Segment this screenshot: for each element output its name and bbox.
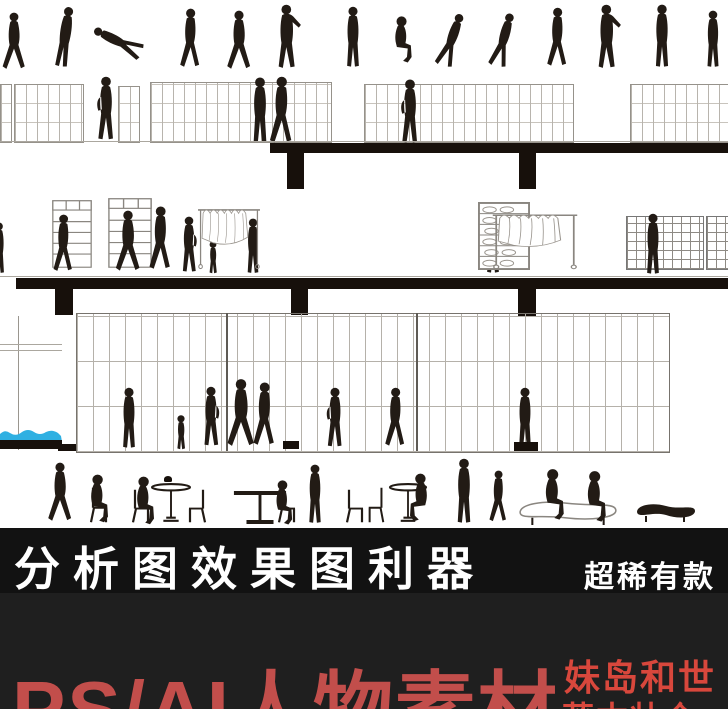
person-silhouette (46, 462, 74, 524)
floor-marker (58, 444, 76, 451)
person-silhouette-shopper (198, 384, 224, 450)
shelf-panel (0, 84, 12, 143)
person-silhouette-seated (534, 468, 568, 522)
shelf-panel (118, 86, 140, 143)
person-silhouette-seated (406, 472, 438, 524)
person-silhouette (224, 10, 254, 72)
person-silhouette (700, 10, 726, 68)
chair (276, 488, 298, 524)
column (55, 289, 73, 315)
floor-line (0, 141, 728, 142)
person-silhouette (384, 16, 416, 64)
architect-name-2: 藤本壮介 (562, 693, 698, 709)
chair (130, 488, 152, 524)
person-silhouette (266, 76, 296, 146)
footer-section: PS/AI人物素材 妹岛和世 藤本壮介 (0, 593, 728, 709)
person-silhouette (0, 222, 10, 274)
person-silhouette (450, 458, 478, 524)
title-banner: 分析图效果图利器 超稀有款 (0, 528, 728, 593)
person-silhouette-backpacker (396, 78, 424, 146)
person-silhouette (112, 210, 144, 274)
mullion (416, 313, 418, 451)
person-silhouette (250, 378, 278, 452)
person-silhouette (430, 9, 473, 72)
person-silhouette (0, 12, 28, 72)
person-silhouette (50, 214, 76, 274)
shelf-panel (14, 84, 84, 143)
person-silhouette-child (172, 414, 190, 450)
chair (88, 486, 110, 524)
product-title: PS/AI人物素材 (12, 645, 559, 709)
chair (366, 486, 386, 524)
person-silhouette-seated (576, 470, 610, 524)
person-silhouette (48, 4, 82, 69)
person-silhouette (322, 386, 348, 450)
column (291, 289, 308, 315)
person-silhouette (644, 4, 680, 68)
clothing-rack (490, 208, 580, 270)
grid-shelf (706, 216, 728, 270)
banner-headline: 分析图效果图利器 (14, 533, 486, 599)
teapot (164, 476, 172, 482)
chair (344, 488, 366, 524)
person-silhouette (483, 10, 522, 73)
banner-tag: 超稀有款 (584, 552, 716, 596)
column (519, 153, 536, 189)
column (287, 153, 304, 189)
floor-line (0, 276, 728, 277)
shelf-panel (150, 82, 332, 143)
product-image: 分析图效果图利器 超稀有款 PS/AI人物素材 妹岛和世 藤本壮介 (0, 0, 728, 709)
person-silhouette (486, 470, 510, 524)
person-silhouette (382, 386, 408, 450)
person-silhouette (544, 6, 570, 70)
person-silhouette (340, 6, 366, 68)
person-silhouette (88, 18, 150, 65)
person-silhouette (640, 212, 666, 276)
person-silhouette (146, 204, 174, 274)
rail-line (0, 350, 62, 351)
person-silhouette (176, 8, 204, 70)
shelf-panel (630, 84, 728, 143)
kidney-bench (634, 500, 698, 524)
chair (186, 488, 208, 524)
floor-slab (16, 278, 728, 289)
person-silhouette (302, 464, 328, 524)
curtain-wall (76, 313, 670, 453)
floor-slab (270, 143, 728, 153)
floor-marker (514, 442, 538, 451)
figure-row (0, 0, 728, 76)
rail-line (0, 344, 62, 345)
clothing-rack (196, 202, 262, 270)
person-silhouette (116, 386, 142, 450)
person-silhouette (592, 4, 622, 70)
person-silhouette-mother-child (92, 76, 120, 142)
person-silhouette (272, 4, 302, 70)
floor-marker (283, 441, 299, 449)
